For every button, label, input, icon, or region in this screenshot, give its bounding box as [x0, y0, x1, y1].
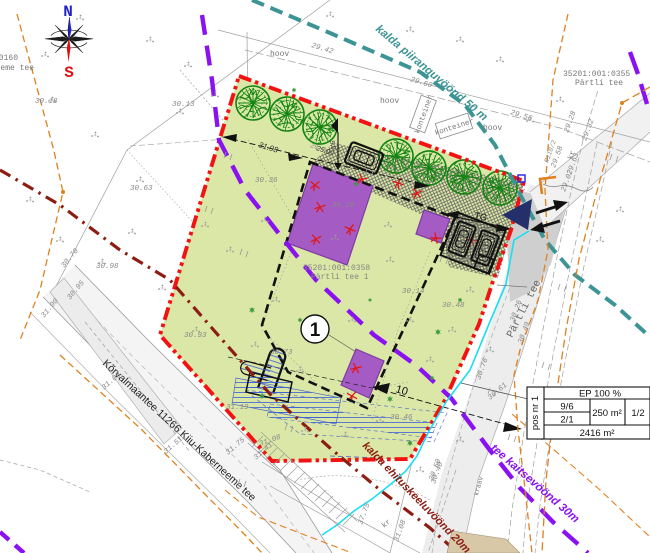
svg-text:30.46: 30.46 [390, 414, 413, 422]
svg-text:9/6: 9/6 [560, 402, 573, 413]
svg-text:hoov: hoov [483, 124, 502, 133]
svg-text:1/2: 1/2 [631, 408, 644, 419]
svg-text:30.98: 30.98 [96, 263, 119, 271]
svg-text::0160: :0160 [0, 54, 18, 63]
svg-text:1: 1 [310, 320, 321, 341]
svg-text:250 m²: 250 m² [592, 408, 622, 419]
svg-text:35201:001:0355: 35201:001:0355 [563, 70, 630, 79]
svg-text:30.73: 30.73 [270, 349, 293, 357]
svg-text:30.26: 30.26 [332, 202, 355, 210]
svg-text:hoov: hoov [380, 97, 399, 106]
svg-text:30.14: 30.14 [402, 288, 425, 296]
svg-text:35201:001:0358: 35201:001:0358 [303, 264, 370, 273]
svg-text:S: S [64, 64, 74, 82]
svg-text:rneeme tee: rneeme tee [0, 64, 34, 73]
svg-text:31.19: 31.19 [226, 404, 249, 412]
svg-text:EP 100 %: EP 100 % [579, 389, 622, 400]
svg-text:30.63: 30.63 [130, 185, 153, 193]
svg-text:Pärtli tee: Pärtli tee [575, 79, 623, 88]
svg-text:hoov: hoov [270, 50, 289, 59]
svg-text:pos nr 1: pos nr 1 [530, 396, 541, 430]
svg-text:30.48: 30.48 [442, 302, 465, 310]
svg-text:Pärtli tee 1: Pärtli tee 1 [311, 273, 369, 282]
svg-text:2/1: 2/1 [560, 415, 573, 426]
svg-text:30.13: 30.13 [172, 101, 195, 109]
svg-text:30.36: 30.36 [255, 177, 278, 185]
svg-text:30.93: 30.93 [184, 332, 207, 340]
svg-text:2416 m²: 2416 m² [580, 428, 615, 439]
svg-text:N: N [63, 3, 73, 21]
